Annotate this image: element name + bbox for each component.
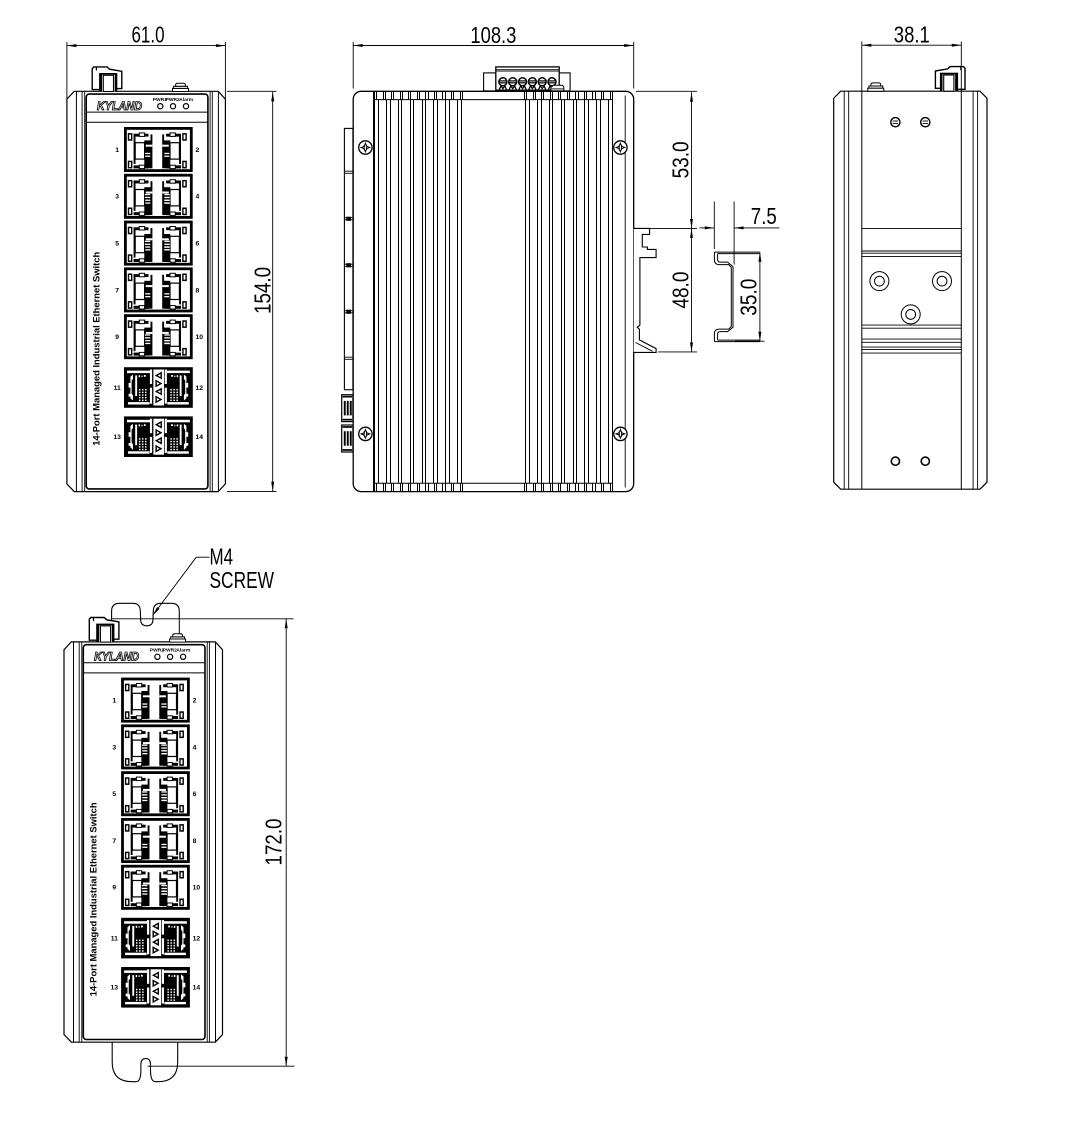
svg-text:48.0: 48.0 xyxy=(668,272,694,309)
svg-text:7.5: 7.5 xyxy=(751,203,777,229)
svg-text:172.0: 172.0 xyxy=(260,819,286,866)
svg-text:35.0: 35.0 xyxy=(735,279,761,316)
svg-text:53.0: 53.0 xyxy=(668,141,694,178)
svg-text:61.0: 61.0 xyxy=(132,21,165,47)
svg-text:SCREW: SCREW xyxy=(210,567,275,593)
svg-text:M4: M4 xyxy=(210,544,234,570)
svg-text:108.3: 108.3 xyxy=(470,22,516,48)
svg-text:154.0: 154.0 xyxy=(250,267,276,314)
svg-text:38.1: 38.1 xyxy=(894,22,930,48)
